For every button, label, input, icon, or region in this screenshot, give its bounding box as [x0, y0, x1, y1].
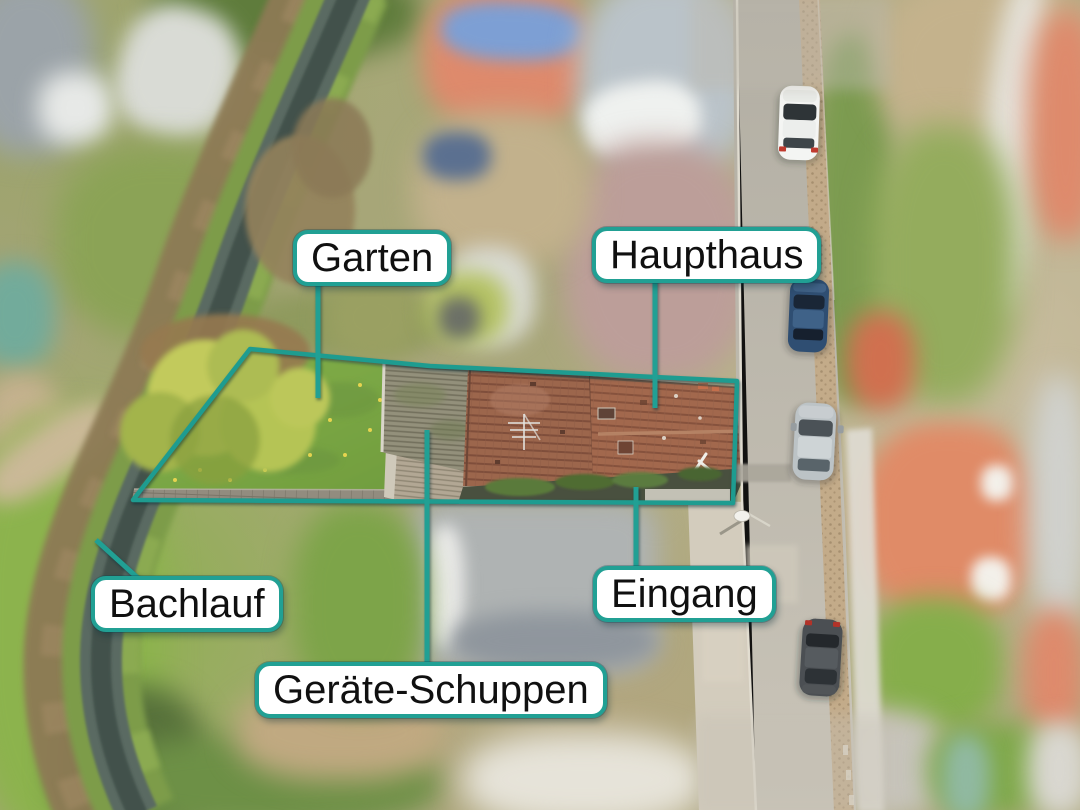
label-geraete-schuppen: Geräte-Schuppen [255, 662, 607, 718]
label-bachlauf: Bachlauf [91, 576, 283, 632]
property-boundary [133, 349, 737, 503]
pointer-line-bachlauf [96, 540, 140, 580]
annotated-aerial-photo: Garten Haupthaus Bachlauf Eingang Geräte… [0, 0, 1080, 810]
label-haupthaus: Haupthaus [592, 227, 821, 283]
label-garten: Garten [293, 230, 451, 286]
label-eingang: Eingang [593, 566, 776, 622]
